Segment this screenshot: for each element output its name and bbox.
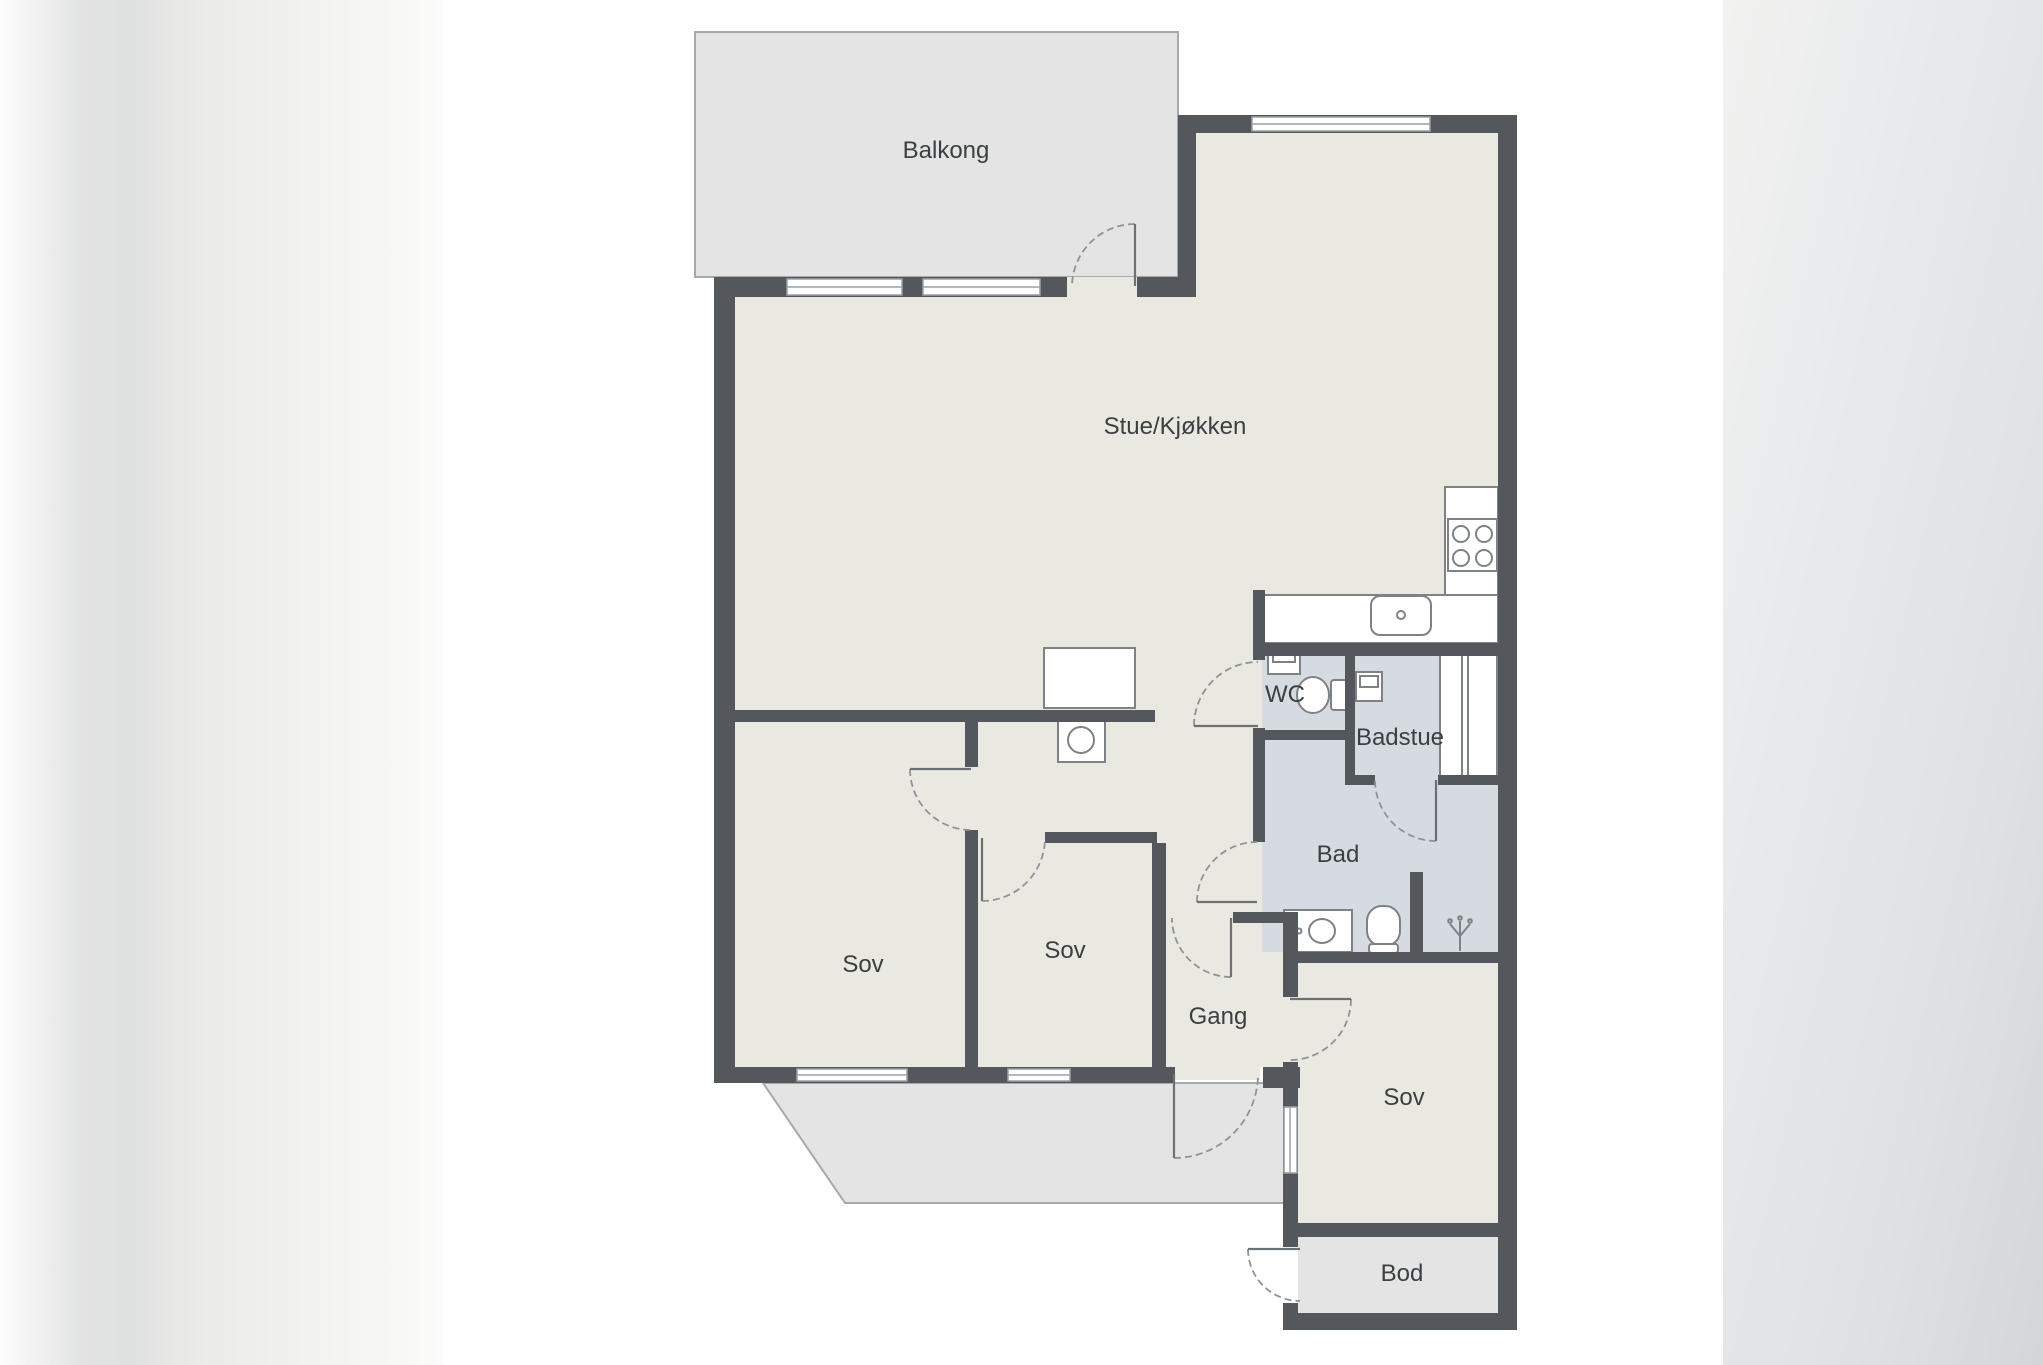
room-label-sov-mid: Sov	[1044, 937, 1085, 964]
wall-nw-vertical	[1178, 115, 1196, 297]
floor-balcony-doorway	[1067, 277, 1137, 297]
floorplan-drawing: Balkong Stue/Kjøkken WC Badstue Bad Sov …	[0, 0, 2043, 1365]
room-label-bad: Bad	[1317, 841, 1360, 868]
wall-wc-badstue	[1345, 643, 1355, 775]
wall-sov-divider-upper	[965, 710, 978, 767]
room-label-stue-kjokken: Stue/Kjøkken	[1104, 413, 1247, 440]
floorplan-page: Balkong Stue/Kjøkken WC Badstue Bad Sov …	[0, 0, 2043, 1365]
window-top	[1252, 117, 1430, 131]
window-balcony-right	[923, 279, 1040, 295]
washing-machine-icon	[1058, 718, 1105, 762]
bathroom-toilet-icon	[1367, 906, 1400, 953]
wall-wc-west-lower	[1253, 728, 1265, 842]
room-label-bod: Bod	[1381, 1260, 1424, 1287]
room-label-sov-left: Sov	[842, 951, 883, 978]
wall-sov-mid-gang	[1152, 843, 1166, 1067]
wall-gang-bottom	[1150, 1067, 1172, 1083]
wall-kitchen-south	[1262, 643, 1517, 656]
wall-exterior-left	[714, 277, 735, 1083]
room-label-badstue: Badstue	[1356, 724, 1444, 751]
wall-bedrooms-bottom	[714, 1067, 1175, 1083]
room-label-sov-right: Sov	[1383, 1084, 1424, 1111]
room-label-gang: Gang	[1189, 1003, 1248, 1030]
stove-icon	[1448, 519, 1497, 571]
window-sov-mid	[1008, 1069, 1070, 1081]
room-label-wc: WC	[1265, 681, 1305, 708]
wall-wc-south	[1262, 730, 1345, 740]
window-sov-right-side	[1284, 1107, 1297, 1173]
sauna-heater-icon	[1356, 672, 1382, 701]
wall-bod-south	[1283, 1313, 1517, 1330]
tv-bench	[1044, 648, 1135, 708]
window-sov-left	[797, 1069, 907, 1081]
wall-badstue-bad-b	[1438, 775, 1498, 785]
wall-exterior-right	[1498, 115, 1517, 1330]
floor-entrance-doorway	[1172, 1067, 1260, 1080]
wall-sov-right-south	[1298, 1223, 1498, 1237]
wall-gang-top	[1233, 912, 1283, 923]
blurred-margin-left	[0, 0, 443, 1365]
wall-bad-shower-stub	[1410, 872, 1423, 957]
sauna-bench	[1440, 650, 1497, 777]
wall-sov-divider-lower	[965, 830, 978, 1067]
blurred-margin-right	[1723, 0, 2043, 1365]
floor-sov-right-doorway	[1283, 997, 1298, 1062]
wall-bad-south	[1290, 952, 1498, 963]
terrace-area	[763, 1083, 1292, 1203]
wall-badstue-bad-a	[1345, 775, 1375, 785]
kitchen-sink-icon	[1371, 596, 1431, 635]
room-label-balkong: Balkong	[903, 137, 990, 164]
wall-living-corridor	[735, 710, 1155, 722]
window-balcony-left	[787, 279, 902, 295]
wall-sov-mid-top	[1045, 832, 1157, 843]
